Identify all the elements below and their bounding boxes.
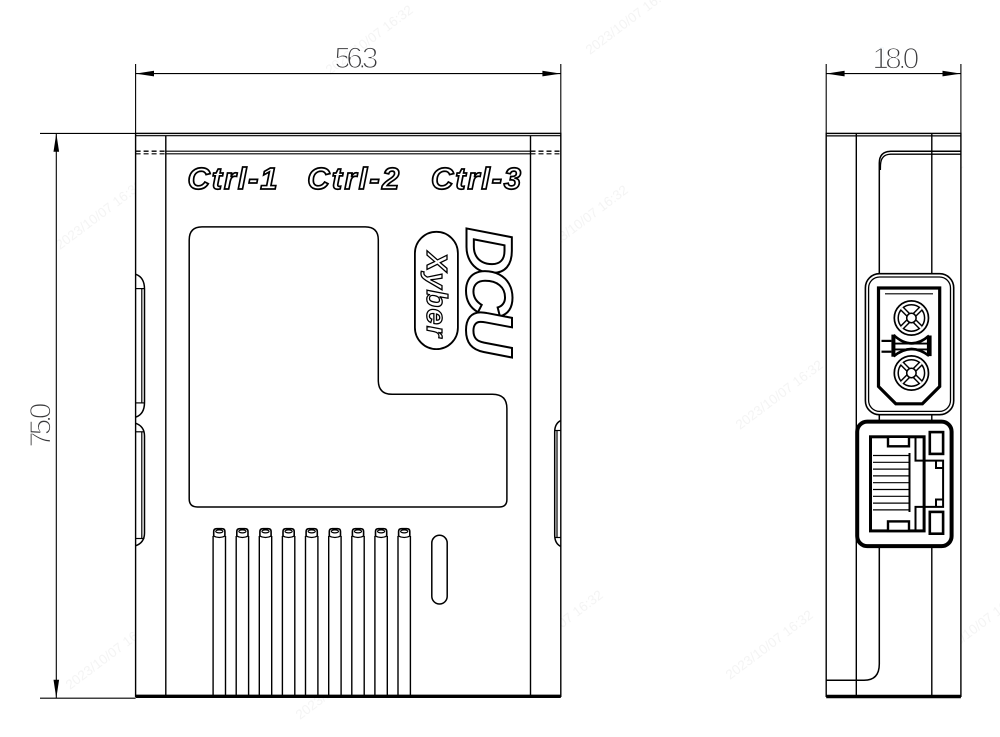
svg-text:DCU: DCU <box>453 227 527 358</box>
svg-text:Ctrl-2: Ctrl-2 <box>307 161 399 196</box>
svg-text:18.0: 18.0 <box>872 42 919 75</box>
svg-text:Xyber: Xyber <box>420 250 452 339</box>
svg-text:75.0: 75.0 <box>25 403 58 448</box>
svg-text:Ctrl-3: Ctrl-3 <box>431 161 521 196</box>
svg-text:56.3: 56.3 <box>334 42 378 75</box>
svg-text:Ctrl-1: Ctrl-1 <box>188 161 278 196</box>
